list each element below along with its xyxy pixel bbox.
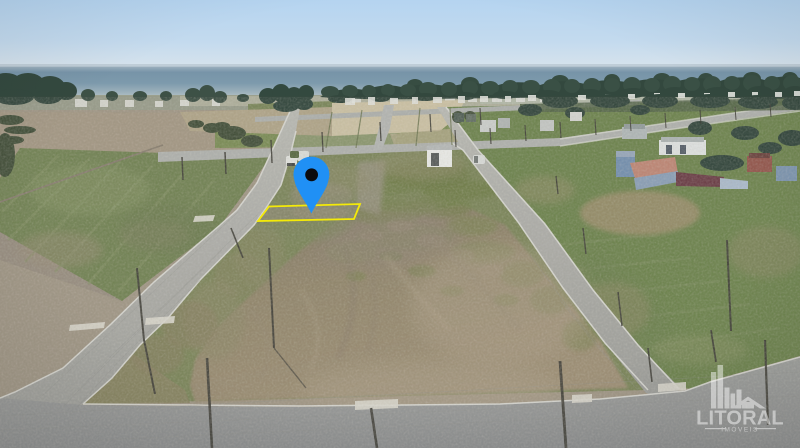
svg-text:IMÓVEIS: IMÓVEIS [721,425,759,434]
